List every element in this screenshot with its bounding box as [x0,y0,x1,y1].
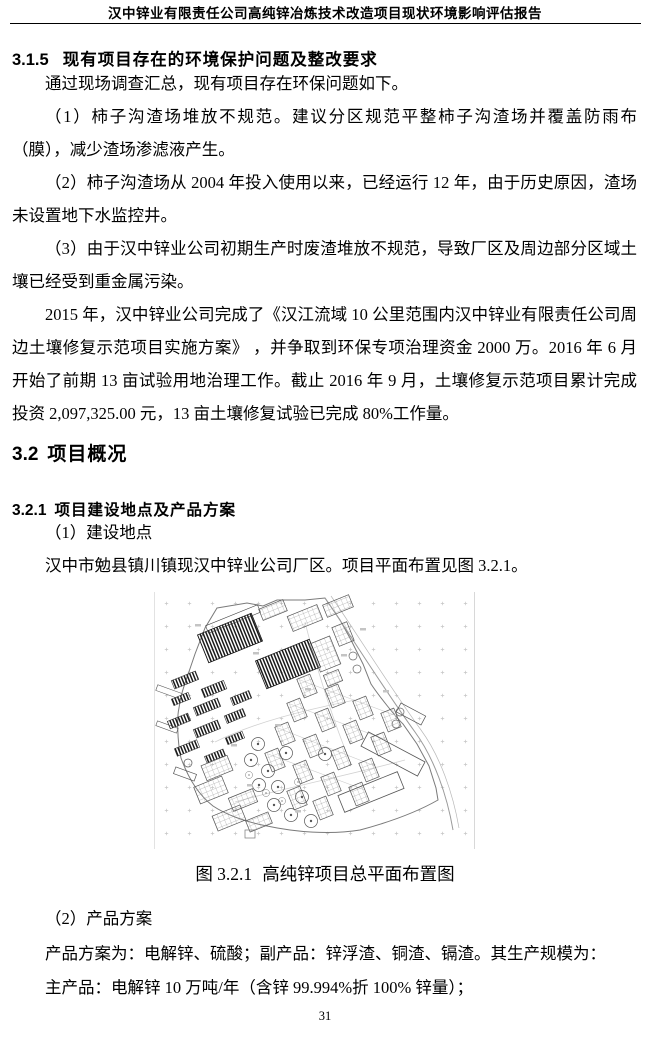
paragraph-intro: 通过现场调查汇总，现有项目存在环保问题如下。 [12,67,637,100]
paragraph-location-label: （1）建设地点 [12,516,637,549]
paragraph-product-scheme: 产品方案为：电解锌、硫酸；副产品：锌浮渣、铜渣、镉渣。其生产规模为： [12,937,637,970]
header-rule [10,23,641,24]
section-heading-3-2: 3.2项目概况 [12,441,127,468]
figure-caption-label: 图 3.2.1 [195,864,252,884]
survey-grid-dots [155,592,474,849]
figure-caption: 图 3.2.1高纯锌项目总平面布置图 [0,862,650,886]
heading-number: 3.1.5 [12,51,49,69]
paragraph-main-product: 主产品：电解锌 10 万吨/年（含锌 99.994%折 100% 锌量）； [12,971,637,1004]
page-number: 31 [0,1008,650,1024]
site-plan-figure [155,592,474,849]
running-header-title: 汉中锌业有限责任公司高纯锌冶炼技术改造项目现状环境影响评估报告 [0,5,650,22]
paragraph-issue-1: （1）柿子沟渣场堆放不规范。建议分区规范平整柿子沟渣场并覆盖防雨布（膜），减少渣… [12,100,637,166]
heading-text: 现有项目存在的环境保护问题及整改要求 [63,51,378,69]
paragraph-product-label: （2）产品方案 [12,902,637,935]
figure-caption-title: 高纯锌项目总平面布置图 [262,864,455,884]
heading-number: 3.2 [12,444,38,465]
figure-site-plan [154,592,475,849]
document-page: 汉中锌业有限责任公司高纯锌冶炼技术改造项目现状环境影响评估报告 3.1.5现有项… [0,0,650,1039]
paragraph-remediation: 2015 年，汉中锌业公司完成了《汉江流域 10 公里范围内汉中锌业有限责任公司… [12,298,637,430]
paragraph-issue-3: （3）由于汉中锌业公司初期生产时废渣堆放不规范，导致厂区及周边部分区域土壤已经受… [12,232,637,298]
paragraph-issue-2: （2）柿子沟渣场从 2004 年投入使用以来，已经运行 12 年，由于历史原因，… [12,166,637,232]
heading-text: 项目概况 [47,444,127,465]
paragraph-location-text: 汉中市勉县镇川镇现汉中锌业公司厂区。项目平面布置见图 3.2.1。 [12,549,637,582]
